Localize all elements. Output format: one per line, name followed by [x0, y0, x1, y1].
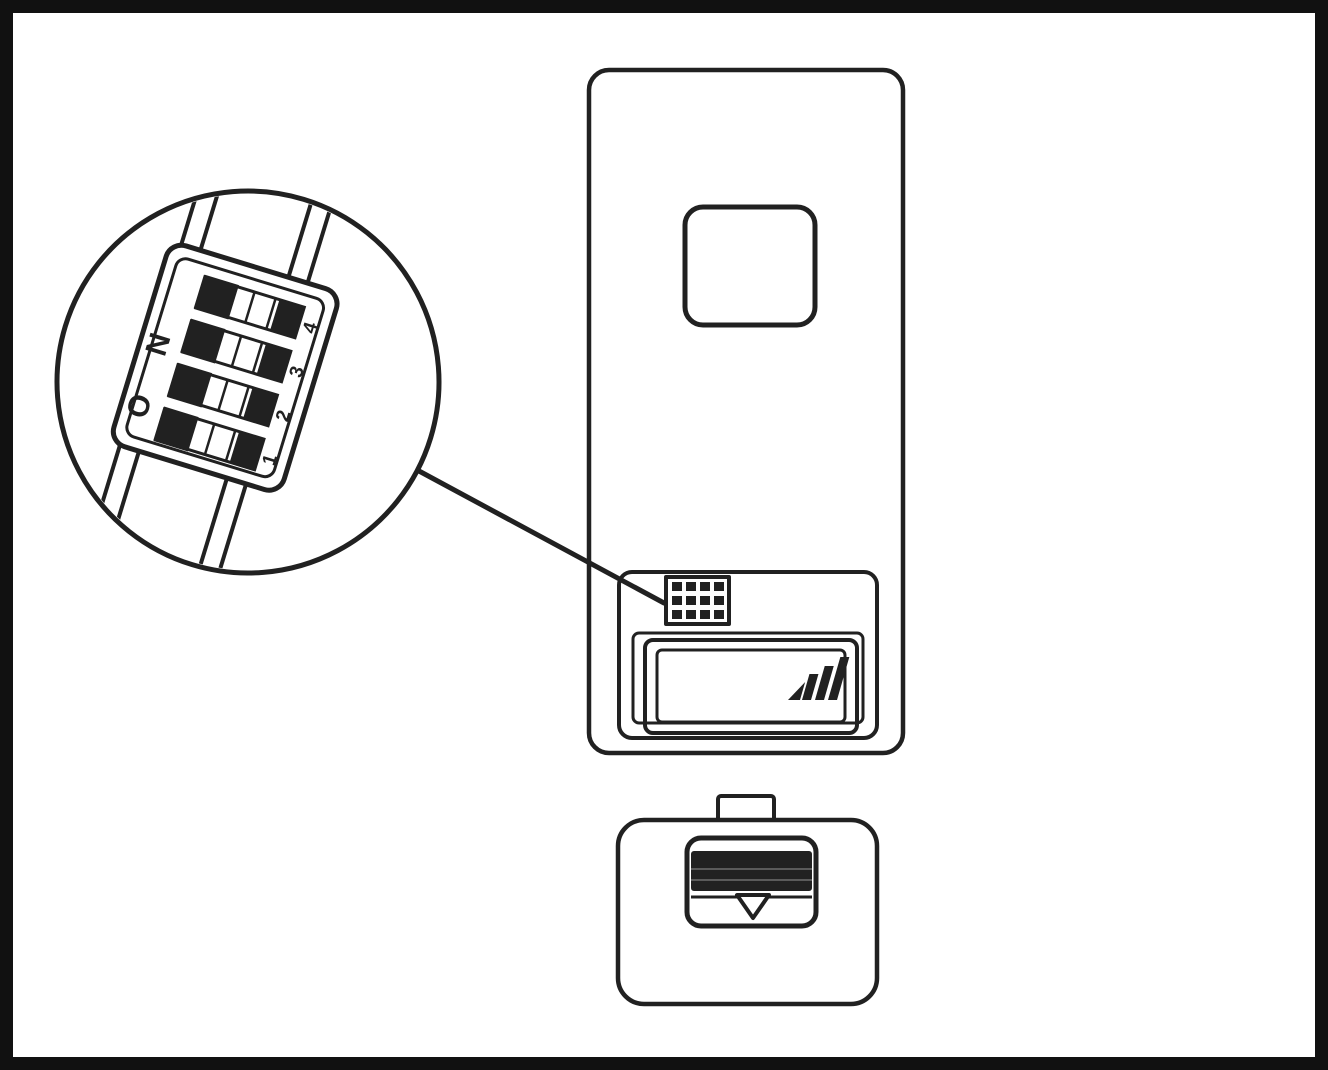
diagram-page: ON 4 3 [0, 0, 1328, 1070]
battery-cover [618, 796, 877, 1004]
latch-grip-band [691, 851, 812, 891]
battery-cover-latch [687, 838, 816, 926]
instruction-diagram: ON 4 3 [0, 0, 1328, 1070]
transmitter-body [589, 70, 903, 753]
dip-switch-block [666, 577, 729, 624]
